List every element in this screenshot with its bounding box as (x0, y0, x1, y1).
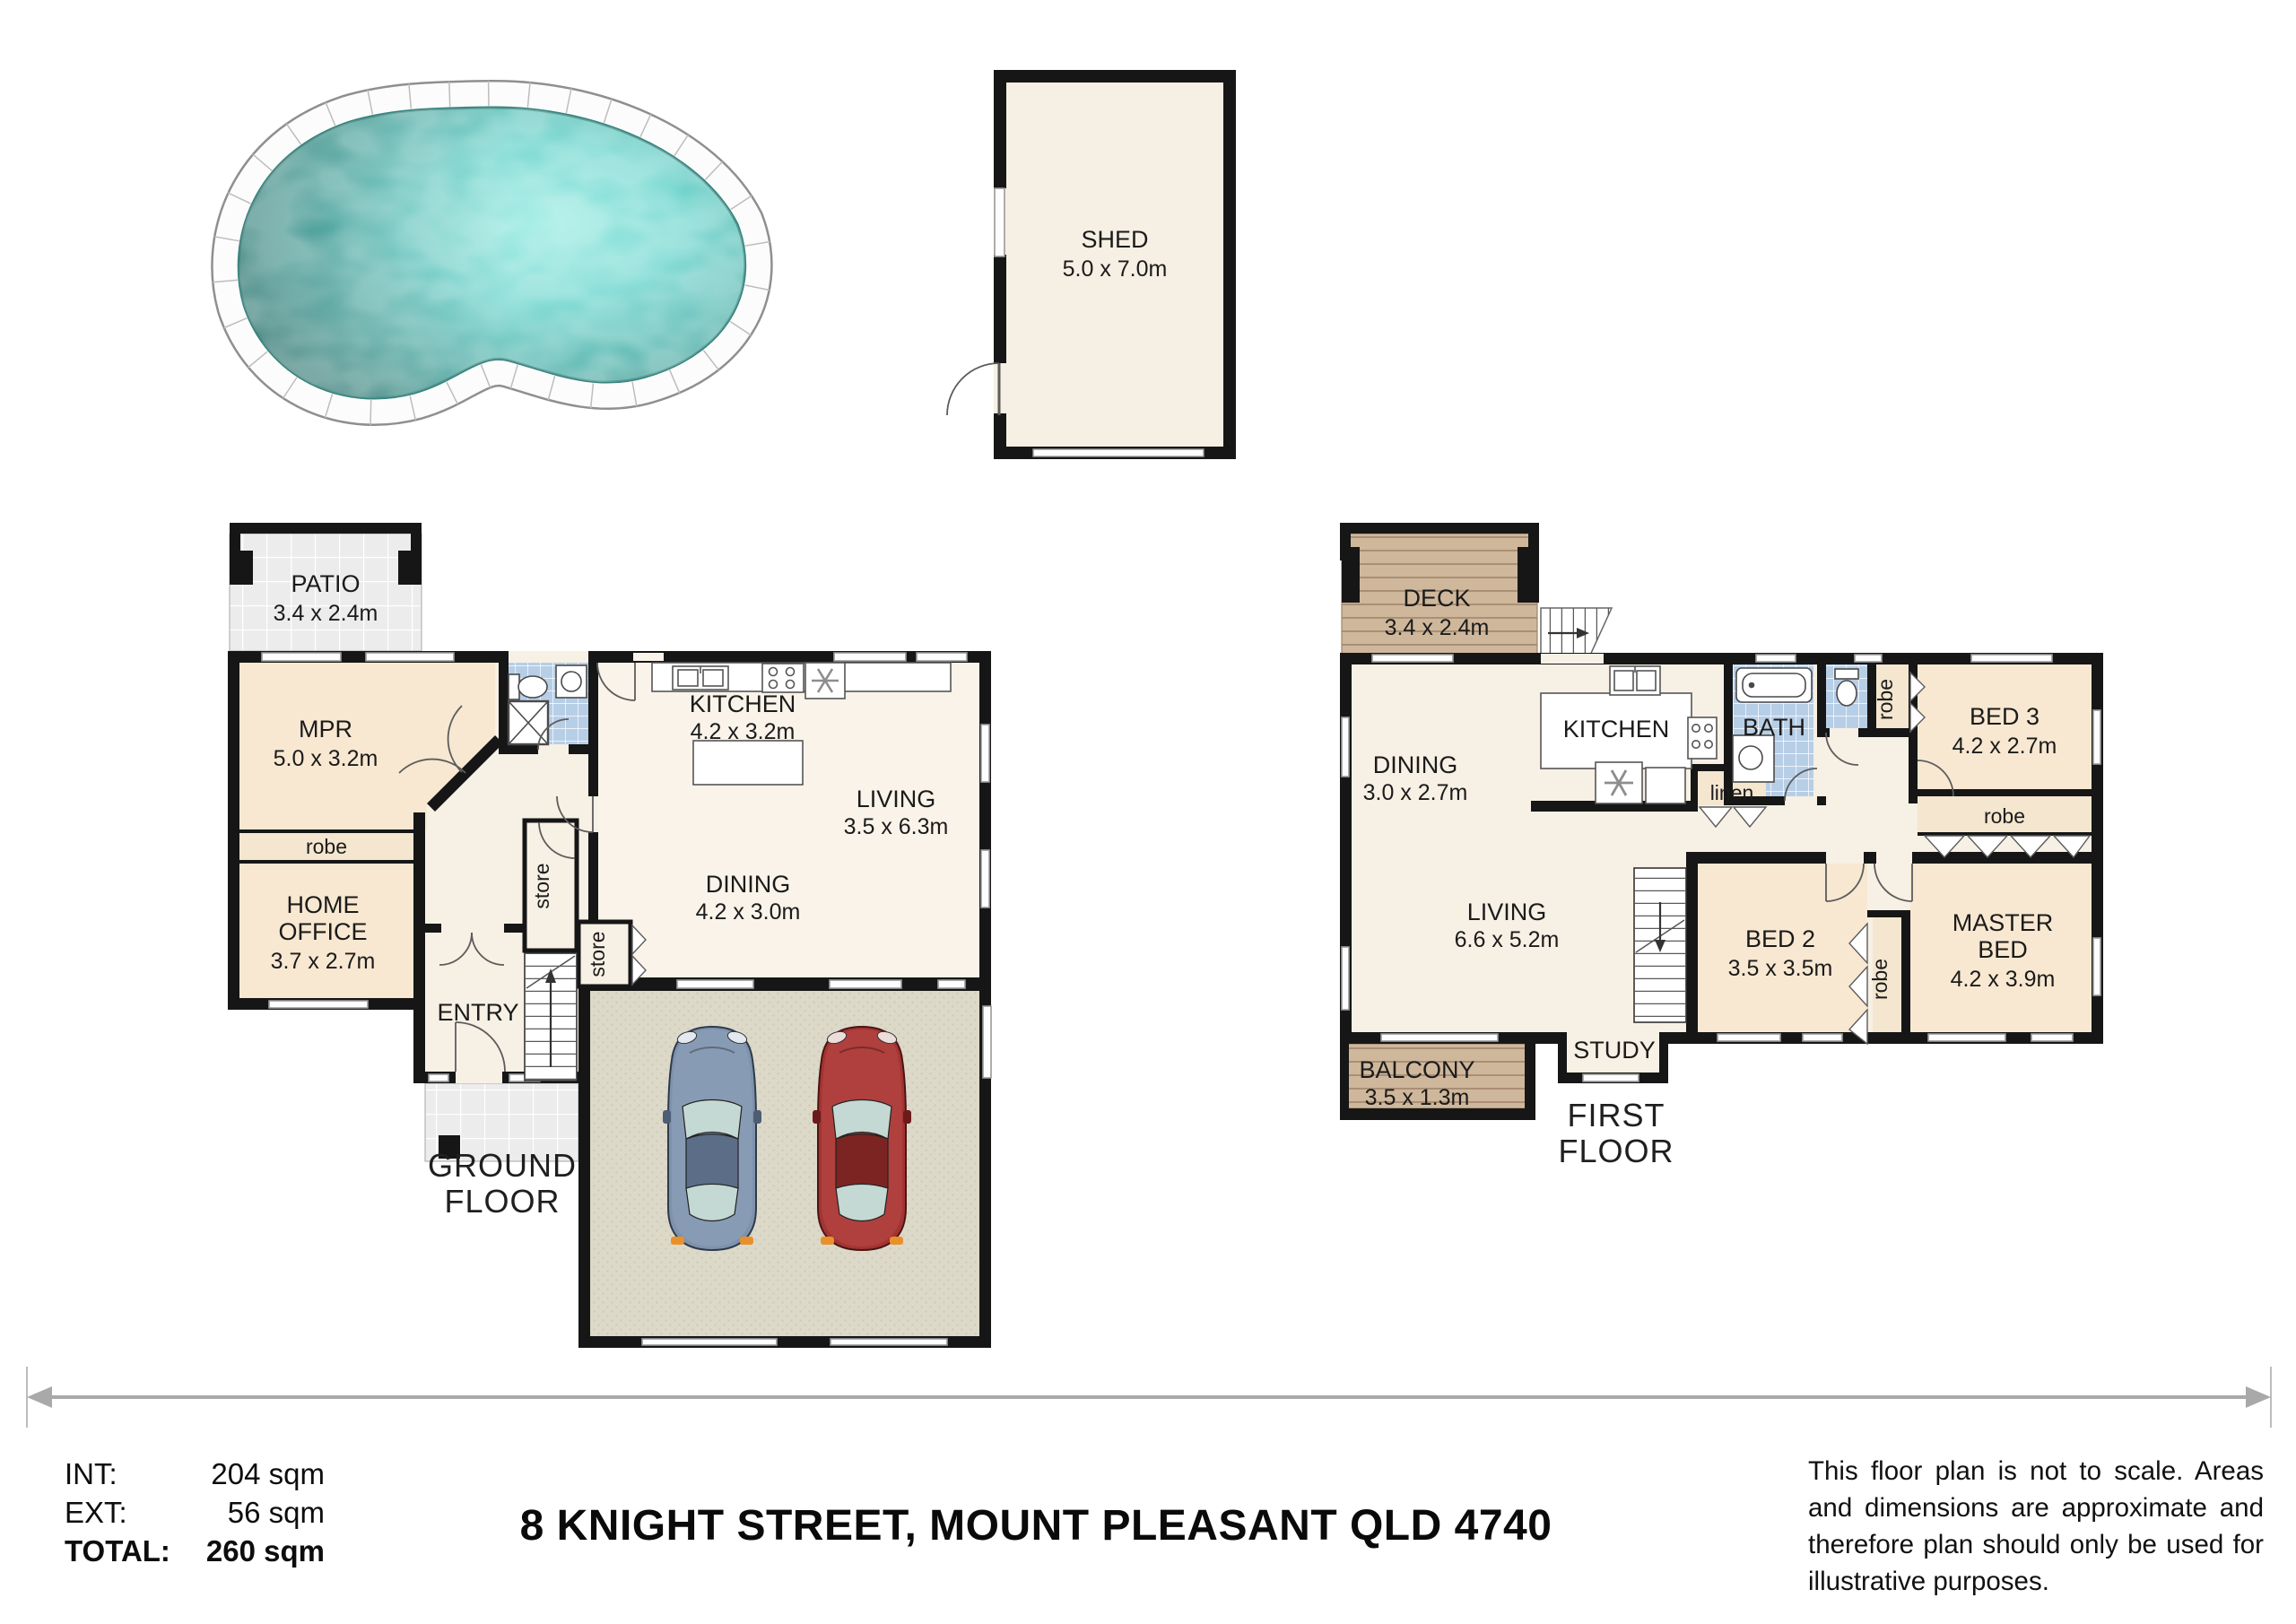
room-label-robe-master: robe (1868, 959, 1892, 1000)
ground-floor-label-2: FLOOR (444, 1183, 560, 1220)
shed-door-arc (947, 363, 999, 415)
bathtub-icon (1736, 668, 1812, 702)
kitchen-cabinet (1646, 768, 1685, 803)
disclaimer-text: This floor plan is not to scale. Areas a… (1808, 1453, 2264, 1600)
pool (213, 72, 807, 466)
room-label-robe-bed3: robe (1984, 804, 2025, 828)
room-label-dining-ff: DINING (1373, 751, 1458, 778)
first-floor-label-2: FLOOR (1558, 1133, 1674, 1169)
first-floor-label-1: FIRST (1568, 1097, 1665, 1133)
shed-window (995, 188, 1004, 256)
room-label-robe-hall: robe (1874, 679, 1897, 720)
gf-stairs-icon (525, 953, 577, 1081)
scale-arrow-left-icon (27, 1386, 52, 1408)
room-label-bed3: BED 3 (1970, 703, 2039, 730)
sink-icon (1610, 666, 1660, 695)
shed-roller-door (1033, 449, 1204, 456)
first-floor-plan: DECK 3.4 x 2.4m DINING 3.0 x 2.7m KITCHE… (1340, 523, 2103, 1169)
room-dims-mpr: 5.0 x 3.2m (274, 746, 378, 771)
room-label-entry: ENTRY (437, 999, 518, 1026)
room-label-balcony: BALCONY (1359, 1056, 1474, 1083)
room-label-home-office-2: OFFICE (279, 918, 368, 945)
room-dims-bed3: 4.2 x 2.7m (1952, 734, 2057, 759)
car-red-icon (813, 1027, 911, 1250)
room-dims-living-gf: 3.5 x 6.3m (844, 814, 949, 839)
room-label-store-dining: store (586, 931, 609, 977)
stove-icon (1688, 717, 1717, 759)
property-address-title: 8 KNIGHT STREET, MOUNT PLEASANT QLD 4740 (112, 1501, 1960, 1550)
area-int-value: 204 sqm (211, 1455, 325, 1493)
toilet-icon (518, 676, 547, 698)
shed: SHED 5.0 x 7.0m (947, 70, 1236, 459)
room-dims-kitchen-gf: 4.2 x 3.2m (691, 719, 796, 744)
floor-plan-page: SHED 5.0 x 7.0m (0, 0, 2296, 1624)
shed-label: SHED (1081, 226, 1148, 253)
room-label-deck: DECK (1403, 585, 1470, 612)
room-label-master-1: MASTER (1952, 909, 2054, 936)
ff-deck-stairs-icon (1541, 608, 1612, 659)
ground-floor-plan: PATIO 3.4 x 2.4m MPR 5.0 x 3.2m robe HOM… (228, 523, 991, 1348)
room-dims-home-office: 3.7 x 2.7m (271, 949, 376, 974)
car-blue-icon (663, 1027, 761, 1250)
fridge-icon (1596, 762, 1642, 803)
room-label-bed2: BED 2 (1745, 925, 1815, 952)
room-label-dining-gf: DINING (706, 871, 791, 898)
room-label-master-2: BED (1978, 936, 2028, 963)
room-dims-bed2: 3.5 x 3.5m (1728, 956, 1833, 981)
stove-icon (762, 664, 804, 692)
room-label-store-hall: store (530, 863, 553, 908)
ground-floor-label-1: GROUND (428, 1147, 577, 1184)
room-label-bath: BATH (1743, 714, 1805, 741)
sink-icon (673, 666, 728, 690)
room-dims-dining-gf: 4.2 x 3.0m (696, 899, 801, 925)
area-int-label: INT: (65, 1455, 117, 1493)
room-dims-deck: 3.4 x 2.4m (1385, 615, 1490, 640)
room-label-patio: PATIO (291, 570, 360, 597)
island-bench (693, 741, 803, 785)
area-row-int: INT: 204 sqm (65, 1455, 325, 1493)
room-label-mpr: MPR (299, 716, 352, 743)
fridge-icon (805, 663, 845, 699)
room-label-linen: linen (1710, 781, 1754, 804)
room-label-living-ff: LIVING (1467, 899, 1547, 925)
scale-arrow-right-icon (2246, 1386, 2271, 1408)
basin-icon (561, 672, 581, 691)
room-label-kitchen-gf: KITCHEN (690, 690, 796, 717)
room-label-study: STUDY (1573, 1037, 1656, 1064)
floor-plan-canvas: SHED 5.0 x 7.0m (0, 0, 2296, 1624)
room-dims-dining-ff: 3.0 x 2.7m (1363, 780, 1468, 805)
room-dims-patio: 3.4 x 2.4m (274, 601, 378, 626)
shed-dims: 5.0 x 7.0m (1063, 256, 1168, 282)
room-label-robe-gf: robe (306, 835, 347, 858)
room-label-living-gf: LIVING (857, 786, 936, 812)
room-dims-master: 4.2 x 3.9m (1951, 967, 2056, 992)
room-label-home-office-1: HOME (287, 891, 360, 918)
room-dims-balcony: 3.5 x 1.3m (1365, 1085, 1470, 1110)
vanity-basin-icon (1733, 735, 1774, 782)
wc-toilet-icon (1835, 669, 1858, 706)
ff-stairs-icon (1634, 868, 1686, 1022)
scale-line (27, 1367, 2271, 1428)
room-dims-living-ff: 6.6 x 5.2m (1455, 927, 1560, 952)
room-label-kitchen-ff: KITCHEN (1563, 716, 1670, 743)
gf-garage-floor (590, 991, 982, 1336)
shower-icon (509, 701, 548, 744)
